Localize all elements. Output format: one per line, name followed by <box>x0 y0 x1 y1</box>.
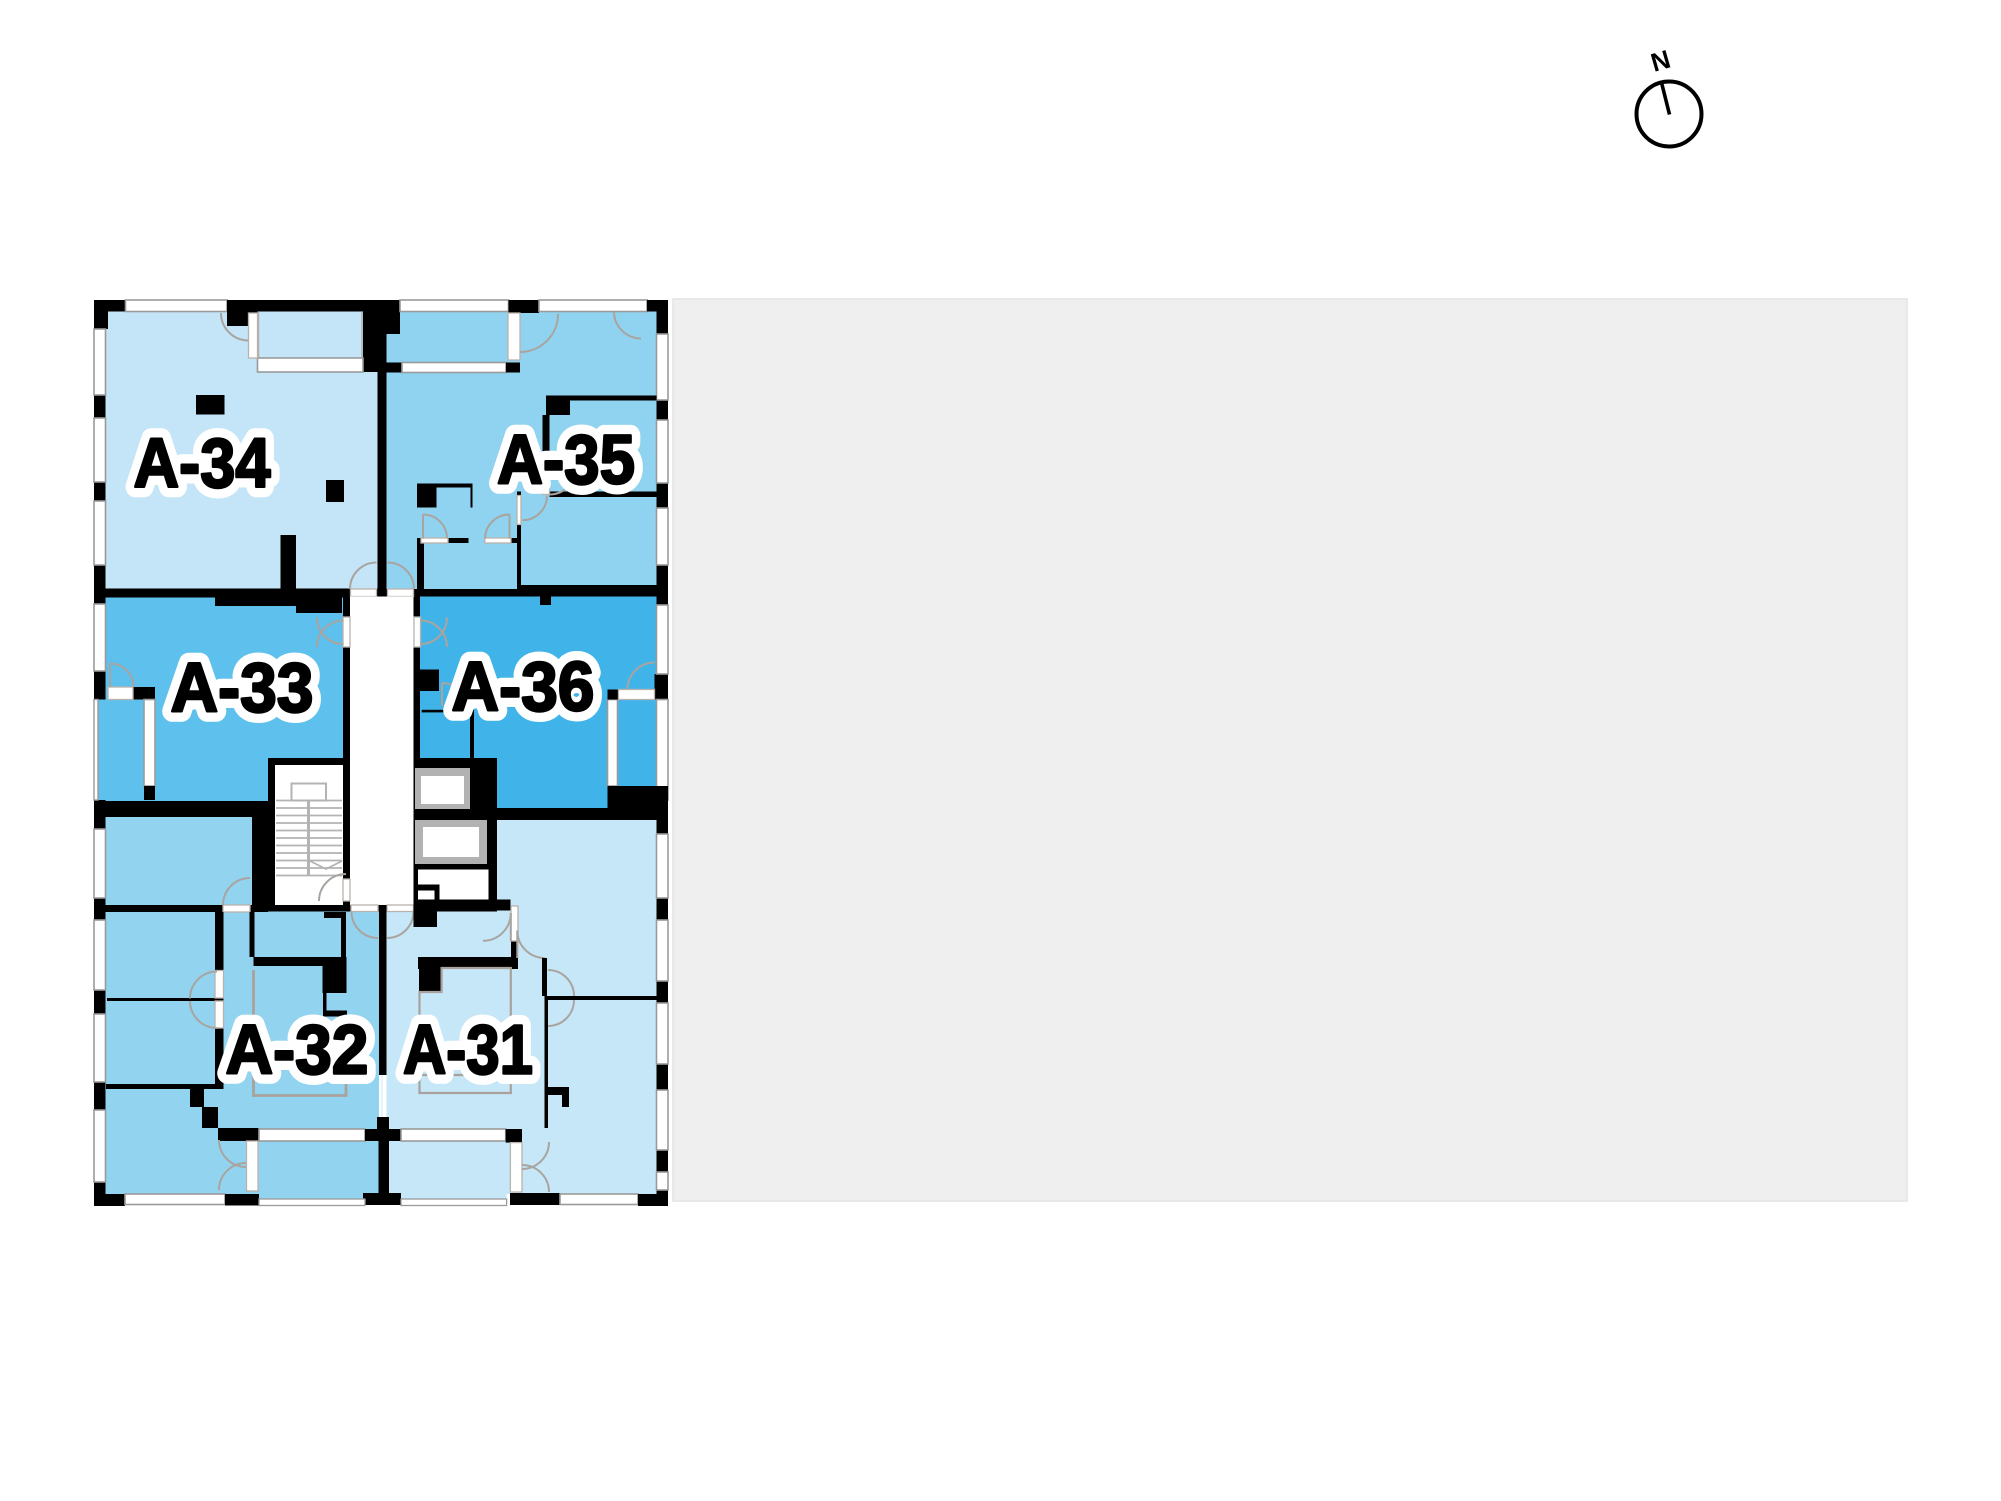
svg-text:A-35: A-35 <box>497 421 635 499</box>
svg-text:N: N <box>1647 44 1673 78</box>
svg-text:A-33: A-33 <box>171 649 314 727</box>
svg-text:A-34: A-34 <box>134 424 271 502</box>
svg-text:A-36: A-36 <box>452 648 595 726</box>
svg-text:A-32: A-32 <box>226 1011 369 1089</box>
svg-text:A-31: A-31 <box>403 1011 533 1089</box>
